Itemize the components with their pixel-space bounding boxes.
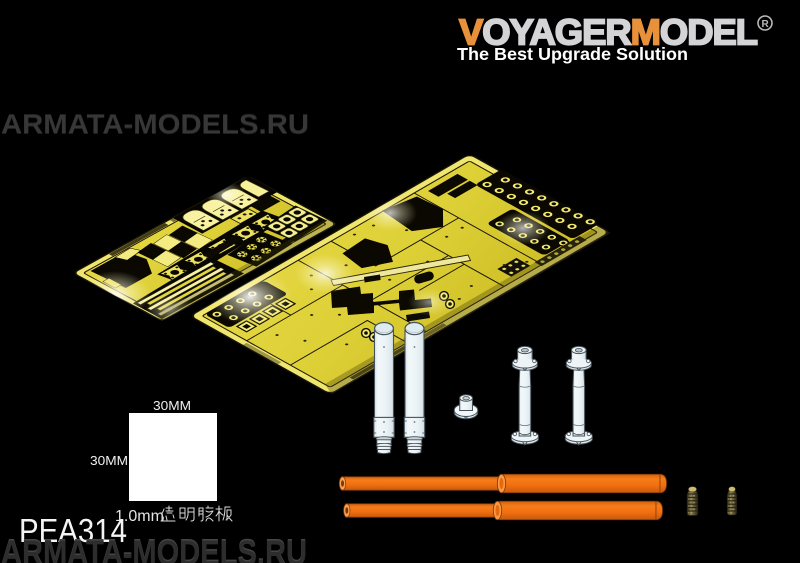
svg-text:The Best Upgrade Solution: The Best Upgrade Solution [457,44,688,64]
svg-text:30MM: 30MM [90,454,128,468]
svg-text:30MM: 30MM [153,399,191,413]
svg-text:ARMATA-MODELS.RU: ARMATA-MODELS.RU [1,108,309,139]
svg-text:R: R [762,19,770,30]
svg-text:ARMATA-MODELS.RU: ARMATA-MODELS.RU [1,534,307,563]
